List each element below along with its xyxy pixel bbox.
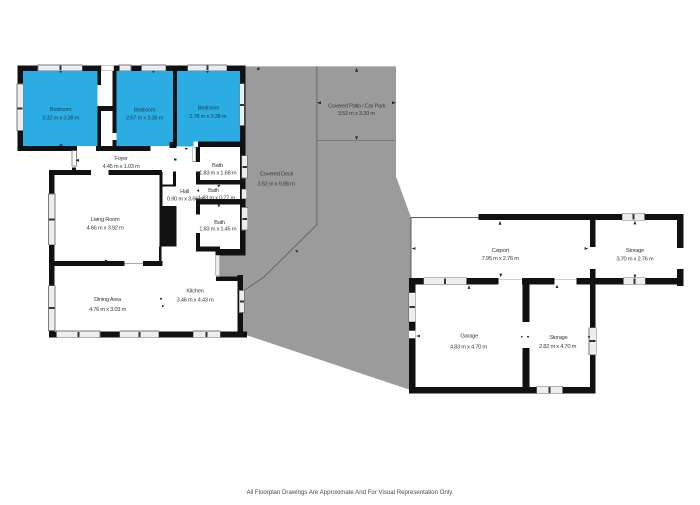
- svg-text:7.95 m x 2.76 m: 7.95 m x 2.76 m: [482, 256, 520, 262]
- svg-text:Bedroom: Bedroom: [134, 108, 156, 114]
- svg-text:Hall: Hall: [180, 189, 189, 195]
- svg-text:4.66 m x 3.92 m: 4.66 m x 3.92 m: [86, 226, 124, 232]
- svg-text:2.67 m x 3.38 m: 2.67 m x 3.38 m: [126, 115, 164, 121]
- svg-text:3.32 m x 3.38 m: 3.32 m x 3.38 m: [42, 116, 80, 122]
- svg-text:3.52 m x 9.88 m: 3.52 m x 9.88 m: [257, 182, 295, 188]
- svg-text:4.83 m x 4.70 m: 4.83 m x 4.70 m: [450, 344, 488, 350]
- svg-text:Storage: Storage: [549, 335, 567, 341]
- svg-text:Storage: Storage: [626, 248, 644, 254]
- svg-text:Dining Area: Dining Area: [94, 297, 122, 303]
- svg-text:2.78 m x 3.38 m: 2.78 m x 3.38 m: [189, 114, 227, 120]
- svg-text:All Floorplan Drawings Are App: All Floorplan Drawings Are Approximate A…: [246, 489, 453, 496]
- svg-text:3.52 m x 3.30 m: 3.52 m x 3.30 m: [338, 111, 376, 117]
- svg-text:4.76 m x 3.03 m: 4.76 m x 3.03 m: [89, 307, 127, 313]
- svg-text:Covered Patio / Car Park: Covered Patio / Car Park: [328, 104, 386, 110]
- svg-text:Kitchen: Kitchen: [186, 289, 203, 295]
- svg-text:Foyer: Foyer: [114, 156, 128, 162]
- svg-text:Covered Deck: Covered Deck: [260, 172, 294, 178]
- svg-text:Bath: Bath: [212, 163, 223, 169]
- svg-text:4.45 m x 1.03 m: 4.45 m x 1.03 m: [102, 164, 140, 170]
- svg-text:Living Room: Living Room: [91, 217, 120, 223]
- svg-text:Bedroom: Bedroom: [50, 107, 72, 113]
- svg-text:Bath: Bath: [208, 188, 219, 194]
- svg-text:2.82 m x 4.70 m: 2.82 m x 4.70 m: [539, 344, 577, 350]
- svg-text:1.83 m x 1.68 m: 1.83 m x 1.68 m: [199, 171, 237, 177]
- svg-text:1.83 m x 0.77 m: 1.83 m x 0.77 m: [198, 195, 236, 201]
- svg-text:Carport: Carport: [492, 248, 510, 254]
- svg-text:3.70 m x 2.76 m: 3.70 m x 2.76 m: [616, 256, 654, 262]
- svg-text:Bath: Bath: [214, 220, 225, 226]
- svg-text:3.46 m x 4.43 m: 3.46 m x 4.43 m: [176, 298, 214, 304]
- svg-text:1.83 m x 1.45 m: 1.83 m x 1.45 m: [199, 227, 237, 233]
- svg-text:Garage: Garage: [460, 334, 478, 340]
- svg-text:Bedroom: Bedroom: [198, 106, 220, 112]
